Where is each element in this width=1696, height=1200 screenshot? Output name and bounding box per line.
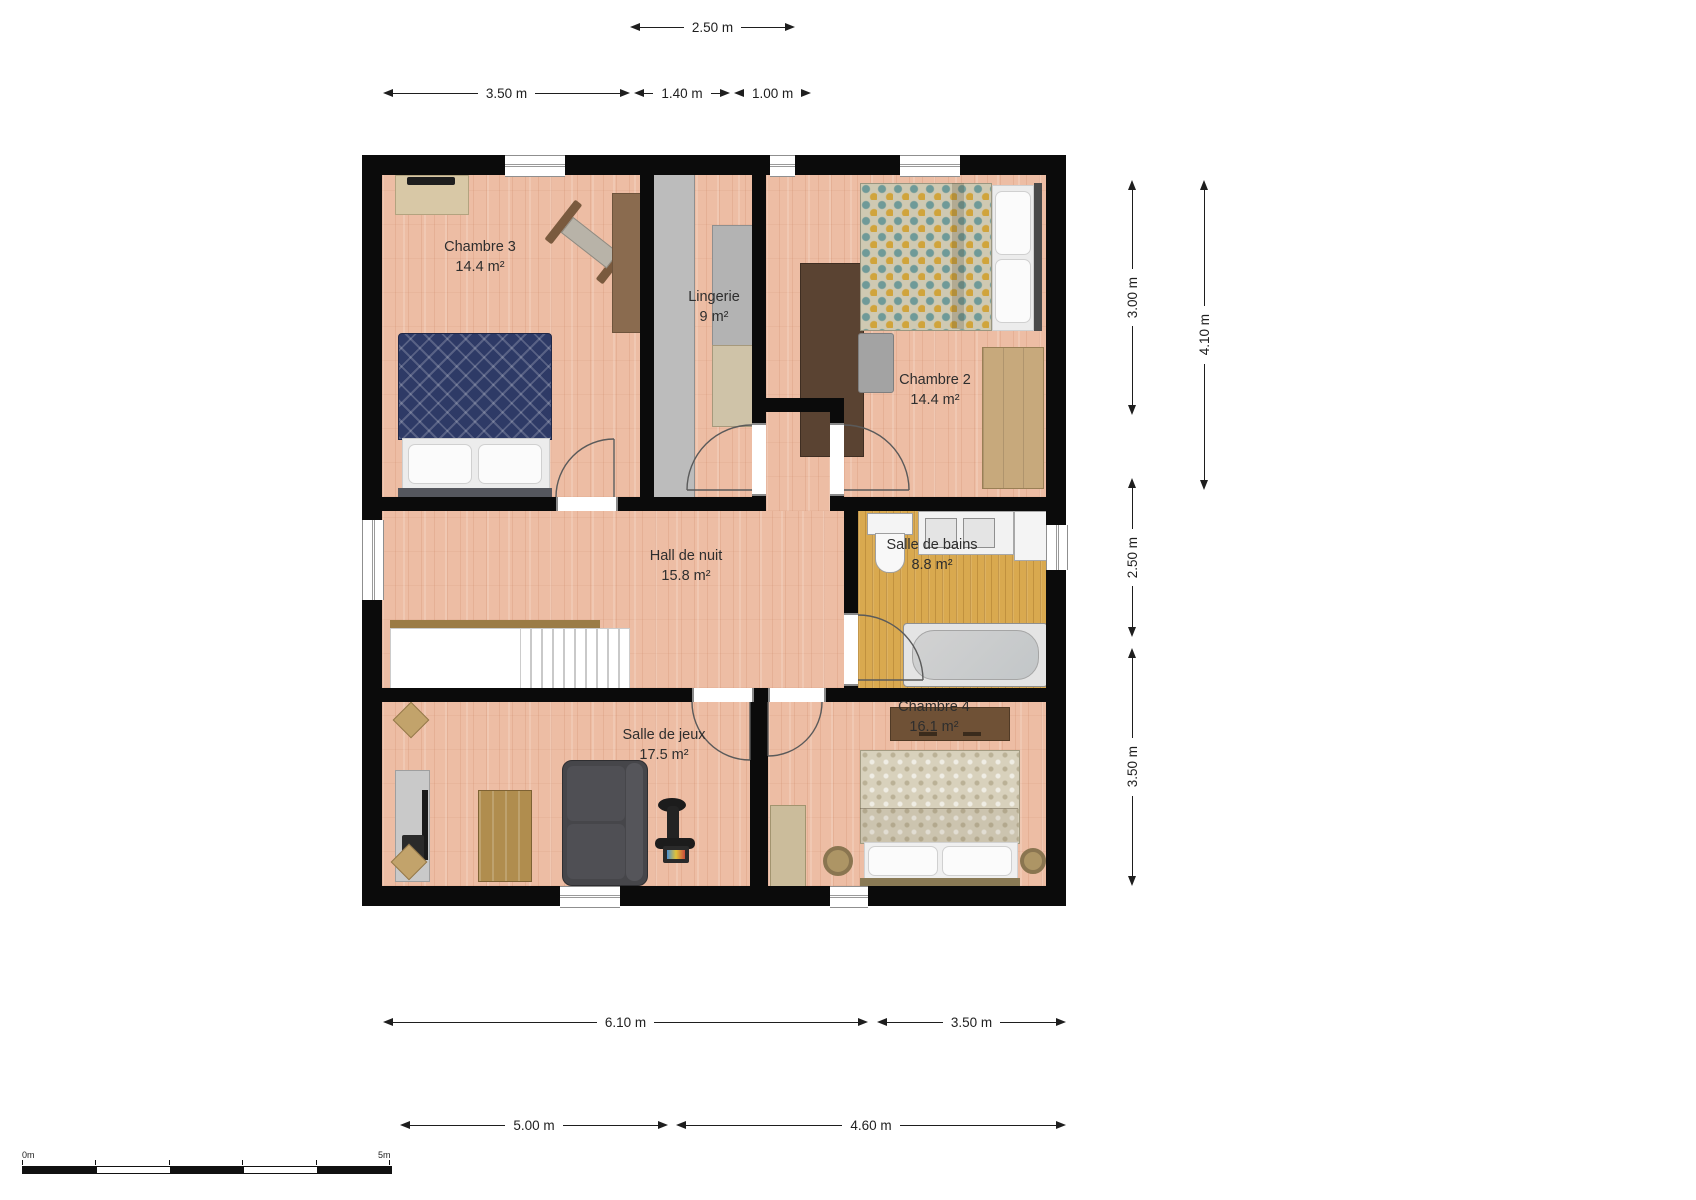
dim-top-3-50: 3.50 m (383, 85, 630, 101)
room-label-hall: Hall de nuit15.8 m² (650, 546, 723, 586)
dim-right-4-10: 4.10 m (1196, 180, 1212, 490)
dim-top-2-50: 2.50 m (630, 19, 795, 35)
room-label-chambre2: Chambre 214.4 m² (899, 370, 971, 410)
room-label-chambre4: Chambre 416.1 m² (898, 697, 970, 737)
room-label-jeux: Salle de jeux17.5 m² (622, 725, 705, 765)
scale-label-start: 0m (22, 1150, 35, 1160)
scale-tick (22, 1160, 23, 1165)
dim-right-3-50: 3.50 m (1124, 648, 1140, 886)
scale-tick (242, 1160, 243, 1165)
scale-tick (95, 1160, 96, 1165)
room-label-lingerie: Lingerie9 m² (688, 287, 740, 327)
dim-bottom-3-50: 3.50 m (877, 1014, 1066, 1030)
dim-bottom-5-00: 5.00 m (400, 1117, 668, 1133)
dim-right-2-50: 2.50 m (1124, 478, 1140, 637)
floor-plan: Chambre 314.4 m² Lingerie9 m² Chambre 21… (362, 155, 1066, 906)
scale-tick (389, 1160, 390, 1165)
floor-plan-page: Chambre 314.4 m² Lingerie9 m² Chambre 21… (0, 0, 1696, 1200)
dim-right-3-00: 3.00 m (1124, 180, 1140, 415)
dim-top-1-40: 1.40 m (634, 85, 730, 101)
scale-tick (169, 1160, 170, 1165)
dim-top-1-00: 1.00 m (734, 85, 802, 101)
dim-bottom-6-10: 6.10 m (383, 1014, 868, 1030)
dim-bottom-4-60: 4.60 m (676, 1117, 1066, 1133)
scale-bar (22, 1166, 392, 1174)
scale-tick (316, 1160, 317, 1165)
room-label-chambre3: Chambre 314.4 m² (444, 237, 516, 277)
room-label-bains: Salle de bains8.8 m² (886, 535, 977, 575)
scale-label-end: 5m (378, 1150, 391, 1160)
